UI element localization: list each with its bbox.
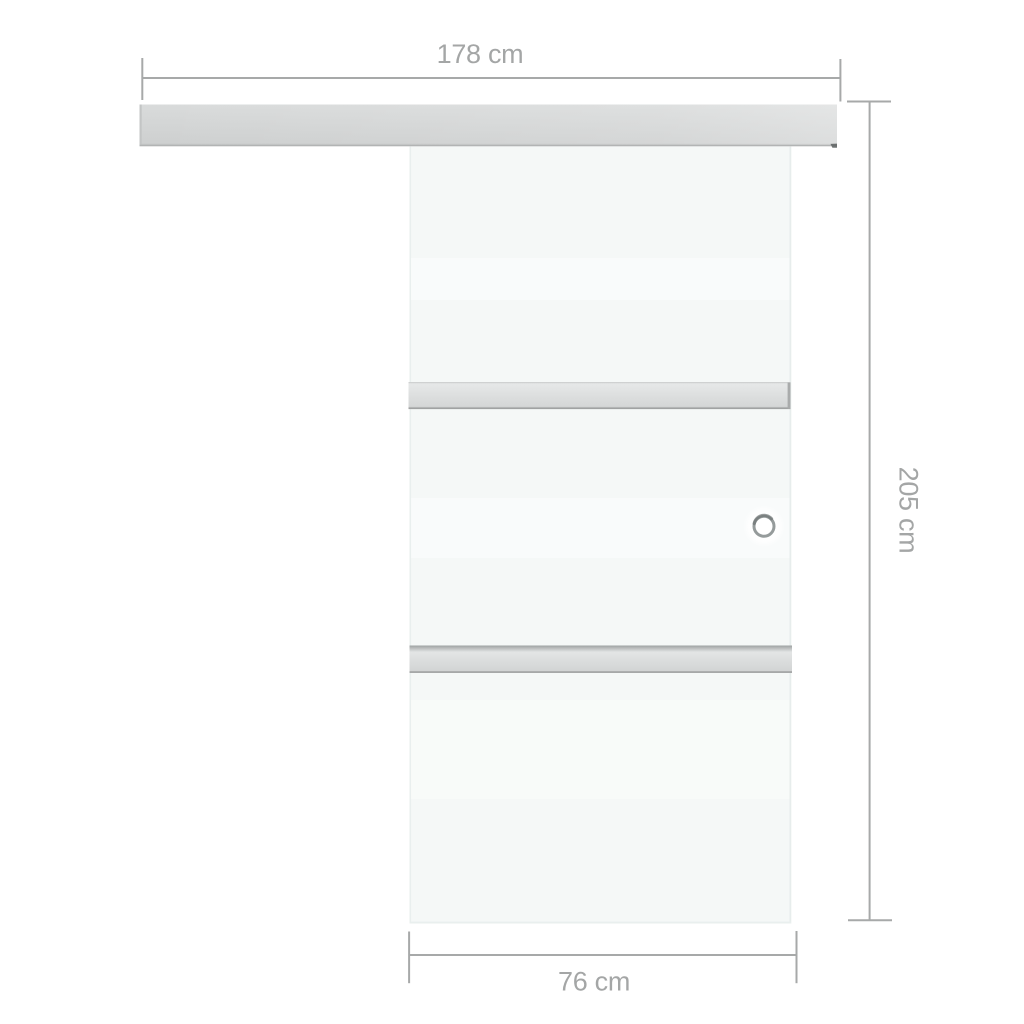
svg-text:178 cm: 178 cm bbox=[437, 39, 524, 69]
svg-text:205 cm: 205 cm bbox=[894, 467, 924, 554]
svg-text:76 cm: 76 cm bbox=[558, 967, 630, 997]
